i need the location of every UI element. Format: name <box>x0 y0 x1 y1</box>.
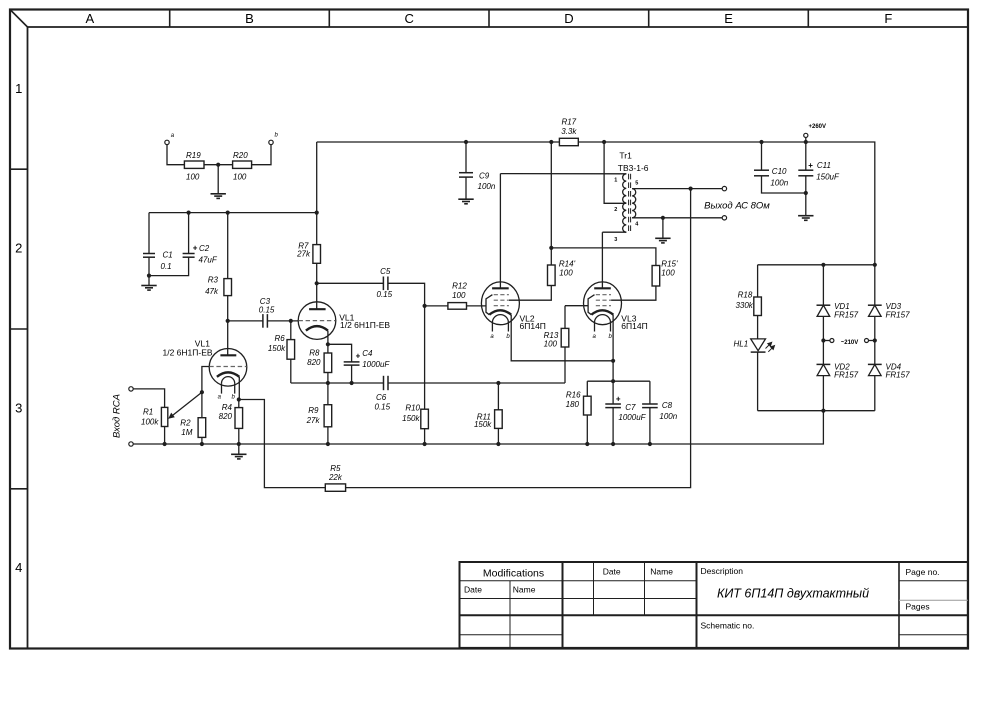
svg-text:0.15: 0.15 <box>375 402 391 411</box>
svg-text:R17: R17 <box>561 118 576 127</box>
svg-text:Page no.: Page no. <box>906 567 940 577</box>
svg-text:R5: R5 <box>330 464 341 473</box>
svg-text:5: 5 <box>635 181 638 187</box>
svg-text:100k: 100k <box>141 417 159 426</box>
svg-text:FR157: FR157 <box>886 311 911 320</box>
svg-text:330k: 330k <box>735 301 753 310</box>
svg-text:Modifications: Modifications <box>483 567 544 579</box>
svg-text:R10: R10 <box>405 404 420 413</box>
svg-text:R8: R8 <box>309 348 320 357</box>
svg-text:100: 100 <box>233 173 247 182</box>
svg-text:F: F <box>884 11 892 26</box>
svg-text:6П14П: 6П14П <box>621 321 647 331</box>
svg-text:+: + <box>616 395 621 404</box>
svg-text:B: B <box>245 11 254 26</box>
svg-text:R15': R15' <box>661 259 678 268</box>
svg-text:180: 180 <box>566 400 580 409</box>
svg-text:R18: R18 <box>738 290 753 299</box>
svg-text:C4: C4 <box>362 349 373 358</box>
svg-text:D: D <box>564 11 573 26</box>
svg-text:22k: 22k <box>328 473 343 482</box>
svg-text:C5: C5 <box>380 267 391 276</box>
svg-text:Schematic no.: Schematic no. <box>701 621 755 631</box>
svg-text:100: 100 <box>661 269 675 278</box>
svg-text:C6: C6 <box>376 393 387 402</box>
svg-text:820: 820 <box>219 412 233 421</box>
svg-text:0.15: 0.15 <box>377 290 393 299</box>
svg-text:Выход АС 8Ом: Выход АС 8Ом <box>704 200 770 211</box>
svg-text:+260V: +260V <box>809 124 827 130</box>
svg-text:0.1: 0.1 <box>161 262 172 271</box>
svg-text:E: E <box>724 11 733 26</box>
svg-text:1: 1 <box>15 81 22 96</box>
svg-text:27k: 27k <box>306 416 321 425</box>
svg-text:6П14П: 6П14П <box>520 321 546 331</box>
svg-text:100: 100 <box>559 269 573 278</box>
svg-text:+: + <box>193 244 198 253</box>
svg-text:47k: 47k <box>205 287 219 296</box>
svg-text:1: 1 <box>614 177 617 183</box>
svg-text:C1: C1 <box>163 251 173 260</box>
svg-text:3: 3 <box>614 237 617 243</box>
svg-text:100n: 100n <box>770 179 788 188</box>
svg-text:47uF: 47uF <box>199 256 218 265</box>
svg-text:1/2 6Н1П-ЕВ: 1/2 6Н1П-ЕВ <box>340 320 390 330</box>
svg-text:1000uF: 1000uF <box>618 413 646 422</box>
svg-text:150k: 150k <box>402 414 420 423</box>
svg-text:R14': R14' <box>559 260 576 269</box>
svg-text:КИТ 6П14П двухтактный: КИТ 6П14П двухтактный <box>717 587 869 601</box>
svg-text:Вход RCA: Вход RCA <box>112 394 123 438</box>
svg-text:Date: Date <box>464 585 482 595</box>
svg-text:C10: C10 <box>772 167 787 176</box>
svg-text:Date: Date <box>603 567 621 577</box>
svg-text:Tr1: Tr1 <box>619 151 632 161</box>
svg-text:Name: Name <box>650 567 673 577</box>
svg-text:+: + <box>356 351 361 360</box>
svg-text:150k: 150k <box>268 344 286 353</box>
svg-text:FR157: FR157 <box>886 371 911 380</box>
svg-text:4: 4 <box>15 560 22 575</box>
svg-text:100n: 100n <box>478 182 496 191</box>
svg-text:820: 820 <box>307 358 321 367</box>
svg-text:A: A <box>85 11 94 26</box>
svg-text:C7: C7 <box>625 403 636 412</box>
svg-text:C9: C9 <box>479 172 490 181</box>
svg-text:~210V: ~210V <box>841 340 859 346</box>
svg-text:+: + <box>808 161 813 170</box>
svg-text:0.15: 0.15 <box>259 305 275 314</box>
svg-text:HL1: HL1 <box>734 339 749 348</box>
svg-text:150k: 150k <box>474 420 492 429</box>
svg-text:1000uF: 1000uF <box>362 360 390 369</box>
svg-text:R6: R6 <box>274 334 285 343</box>
svg-text:FR157: FR157 <box>834 371 859 380</box>
svg-text:150uF: 150uF <box>816 173 840 182</box>
svg-text:C2: C2 <box>199 244 210 253</box>
svg-text:Name: Name <box>513 585 536 595</box>
svg-text:R12: R12 <box>452 281 467 290</box>
svg-text:R20: R20 <box>233 151 248 160</box>
svg-text:27k: 27k <box>296 250 311 259</box>
svg-text:C11: C11 <box>817 161 831 170</box>
svg-text:2: 2 <box>15 241 22 256</box>
svg-text:R4: R4 <box>222 403 233 412</box>
svg-text:1M: 1M <box>181 428 192 437</box>
svg-text:Pages: Pages <box>906 602 930 612</box>
svg-text:R1: R1 <box>143 407 153 416</box>
svg-text:R3: R3 <box>208 275 219 284</box>
svg-text:C: C <box>405 11 414 26</box>
svg-text:2: 2 <box>614 207 617 213</box>
svg-text:1/2 6Н1П-ЕВ: 1/2 6Н1П-ЕВ <box>163 348 213 358</box>
svg-text:100n: 100n <box>659 412 677 421</box>
svg-text:3.3k: 3.3k <box>561 127 577 136</box>
svg-text:Description: Description <box>701 566 744 576</box>
svg-text:ТВ3-1-6: ТВ3-1-6 <box>618 163 649 173</box>
svg-text:100: 100 <box>186 173 200 182</box>
svg-text:3: 3 <box>15 400 22 415</box>
svg-text:R2: R2 <box>180 419 191 428</box>
svg-text:R16: R16 <box>566 391 581 400</box>
svg-text:C8: C8 <box>662 401 673 410</box>
svg-text:R9: R9 <box>308 406 319 415</box>
svg-text:100: 100 <box>544 339 558 348</box>
svg-text:100: 100 <box>452 291 466 300</box>
svg-text:R19: R19 <box>186 151 201 160</box>
svg-text:FR157: FR157 <box>834 311 859 320</box>
